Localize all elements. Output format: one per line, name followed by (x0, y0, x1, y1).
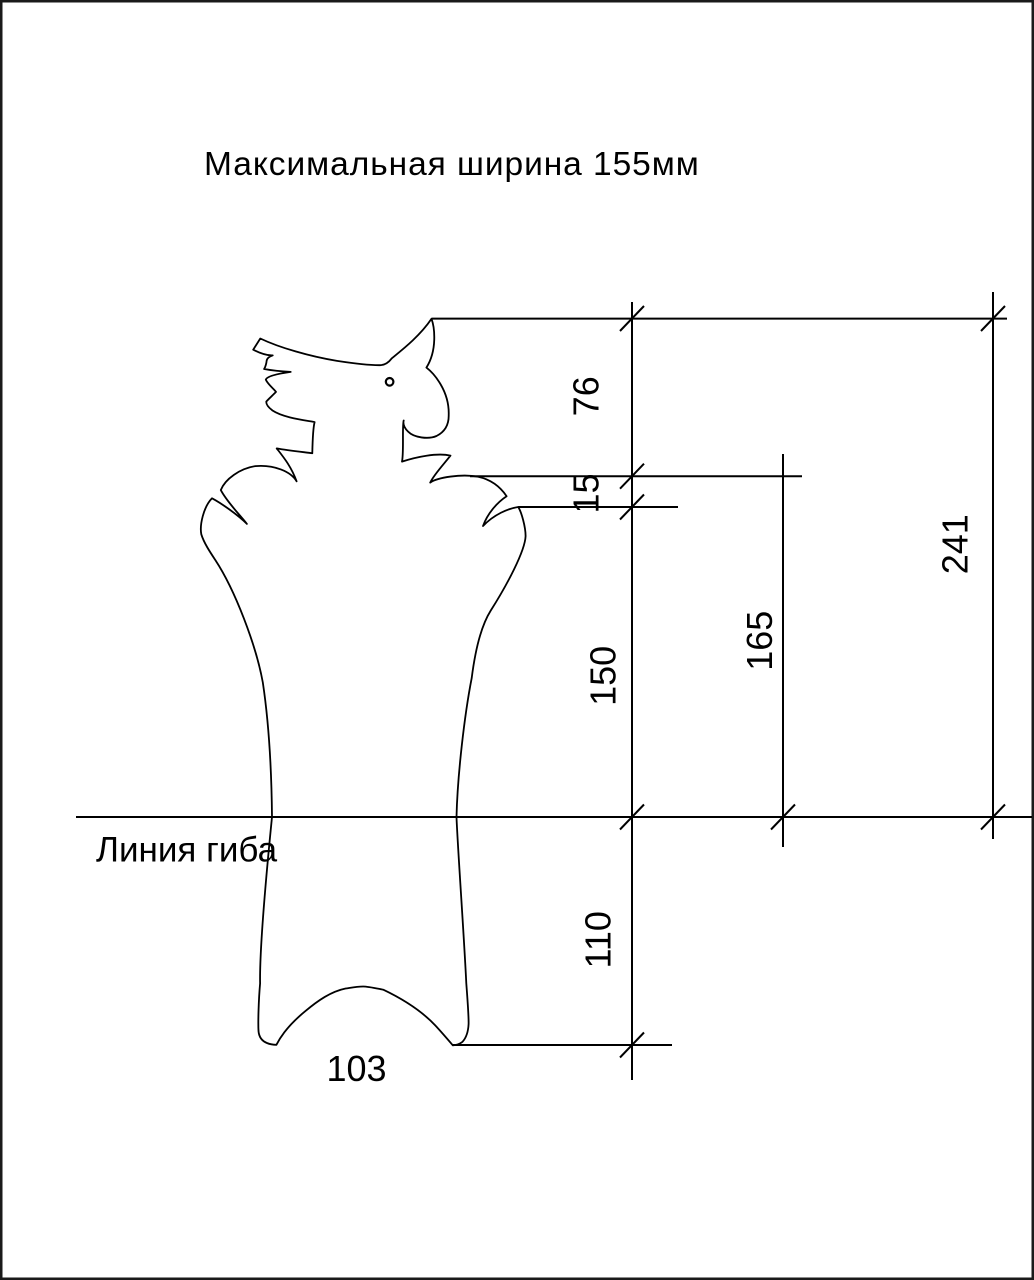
svg-text:150: 150 (582, 646, 623, 706)
svg-text:Максимальная ширина 155мм: Максимальная ширина 155мм (204, 146, 700, 183)
svg-text:15: 15 (565, 473, 606, 513)
svg-text:Линия гиба: Линия гиба (96, 831, 278, 870)
svg-text:241: 241 (935, 514, 976, 574)
svg-text:110: 110 (577, 911, 618, 968)
svg-text:103: 103 (326, 1048, 386, 1089)
svg-text:76: 76 (565, 376, 606, 416)
svg-text:165: 165 (739, 611, 780, 671)
